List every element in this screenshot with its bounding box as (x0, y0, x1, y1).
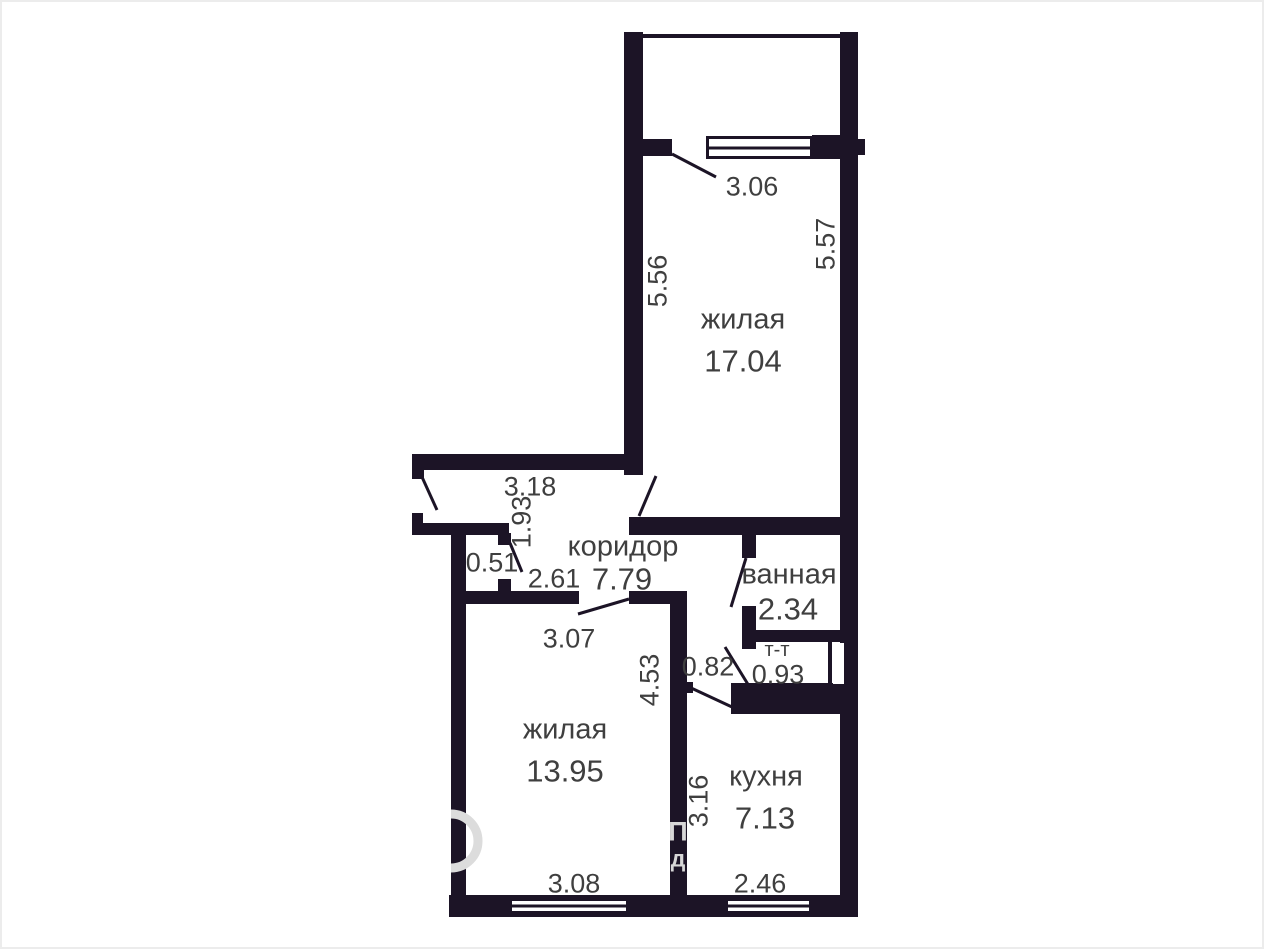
room-toilet-area: 0.93 (752, 662, 805, 689)
room-kitchen-area: 7.13 (735, 803, 795, 834)
door-leaf-living-top (639, 476, 656, 516)
dim-top-window: 3.06 (726, 174, 779, 201)
dim-living-bottom-width: 3.08 (548, 871, 601, 898)
dim-kitchen-height: 3.16 (686, 775, 713, 828)
dim-closet: 0.51 (466, 550, 519, 577)
dim-hall-width: 2.61 (528, 566, 581, 593)
dim-living-top-right: 5.57 (813, 218, 840, 271)
dim-entry-depth: 1.93 (509, 496, 536, 549)
room-bathroom-name: ванная (741, 561, 836, 590)
room-living-top-name: жилая (701, 306, 785, 335)
door-leaf-kitchen (689, 687, 732, 707)
door-leaf-balcony (672, 154, 716, 177)
room-living-bottom-name: жилая (523, 716, 607, 745)
dim-living-bottom-door: 3.07 (543, 626, 596, 653)
dim-living-bottom-height: 4.53 (637, 654, 664, 707)
door-leaf-entrance (422, 477, 437, 510)
watermark-letter-2: д (671, 848, 686, 871)
room-toilet-name: т-т (765, 640, 790, 660)
room-bathroom-area: 2.34 (758, 594, 818, 625)
floorplan-canvas: 3.06 5.56 5.57 жилая 17.04 3.18 1.93 0.5… (0, 0, 1264, 949)
room-kitchen-name: кухня (729, 763, 803, 792)
room-living-top-area: 17.04 (704, 346, 782, 377)
door-leaf-living-bottom (578, 599, 629, 614)
room-corridor-area: 7.79 (592, 564, 652, 595)
watermark-arc (451, 814, 478, 868)
door-swing-overlay (2, 2, 1264, 949)
room-living-bottom-area: 13.95 (526, 756, 604, 787)
watermark-letter-1: П (668, 819, 687, 846)
room-corridor-name: коридор (568, 533, 679, 562)
dim-passage: 0.82 (682, 654, 735, 681)
dim-living-top-left: 5.56 (645, 255, 672, 308)
dim-kitchen-width: 2.46 (734, 871, 787, 898)
